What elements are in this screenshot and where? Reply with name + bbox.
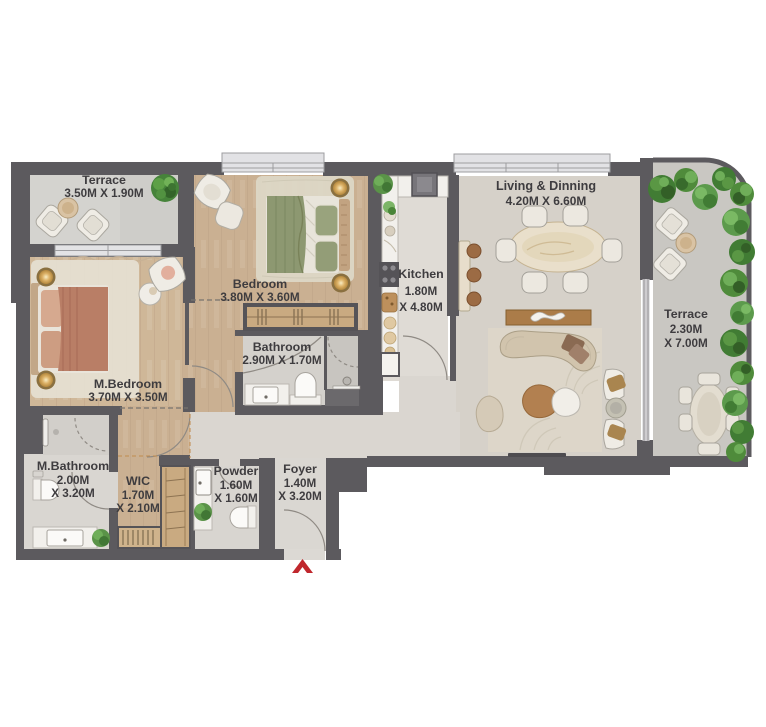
svg-text:3.80M X 3.60M: 3.80M X 3.60M	[220, 291, 299, 304]
svg-text:2.00M: 2.00M	[57, 474, 89, 487]
svg-text:1.40M: 1.40M	[284, 477, 316, 490]
svg-text:X 3.20M: X 3.20M	[278, 490, 322, 503]
svg-text:X 2.10M: X 2.10M	[116, 502, 160, 515]
svg-text:1.70M: 1.70M	[122, 489, 154, 502]
svg-text:Terrace: Terrace	[664, 307, 708, 321]
svg-text:WIC: WIC	[126, 474, 150, 488]
svg-text:Living & Dinning: Living & Dinning	[496, 179, 596, 193]
svg-text:Powder: Powder	[214, 464, 259, 478]
svg-text:Bathroom: Bathroom	[253, 340, 312, 354]
svg-text:M.Bedroom: M.Bedroom	[94, 377, 162, 391]
svg-text:X 1.60M: X 1.60M	[214, 492, 258, 505]
svg-text:1.80M: 1.80M	[405, 285, 437, 298]
svg-text:X 7.00M: X 7.00M	[664, 337, 708, 350]
svg-text:Terrace: Terrace	[82, 173, 126, 187]
svg-text:4.20M X 6.60M: 4.20M X 6.60M	[506, 194, 587, 208]
svg-text:Foyer: Foyer	[283, 462, 317, 476]
svg-text:Kitchen: Kitchen	[398, 267, 443, 281]
svg-text:2.90M X 1.70M: 2.90M X 1.70M	[242, 354, 321, 367]
svg-text:X 3.20M: X 3.20M	[51, 487, 95, 500]
svg-text:1.60M: 1.60M	[220, 479, 252, 492]
svg-text:X 4.80M: X 4.80M	[399, 301, 443, 314]
svg-text:M.Bathroom: M.Bathroom	[37, 459, 109, 473]
svg-text:3.50M X 1.90M: 3.50M X 1.90M	[64, 187, 143, 200]
svg-text:3.70M X 3.50M: 3.70M X 3.50M	[88, 391, 167, 404]
svg-text:Bedroom: Bedroom	[233, 277, 287, 291]
svg-text:2.30M: 2.30M	[670, 323, 702, 336]
